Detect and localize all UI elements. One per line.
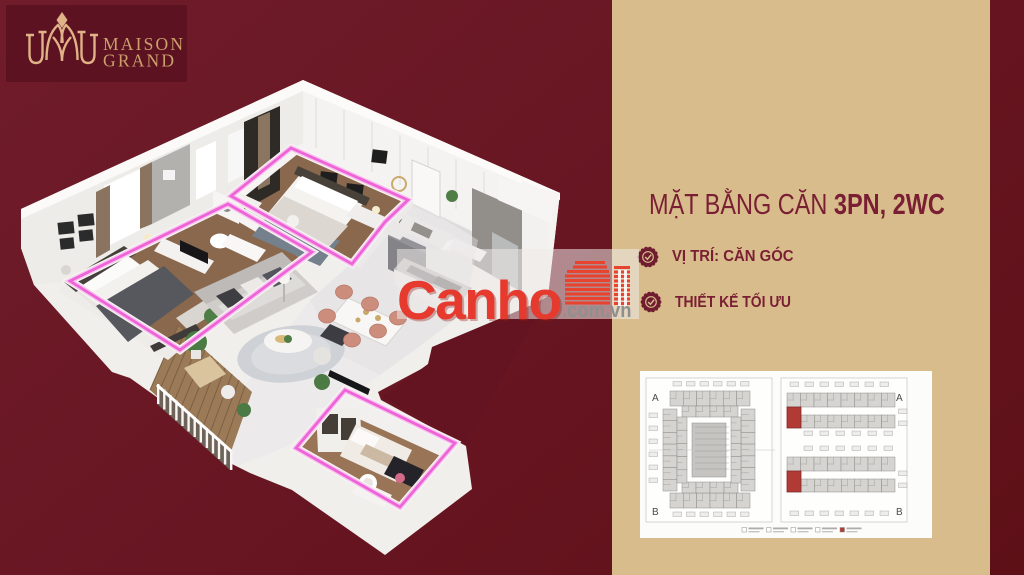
- svg-text:A: A: [652, 393, 659, 404]
- svg-text:GRAND: GRAND: [103, 51, 176, 71]
- svg-text:B: B: [652, 507, 659, 518]
- svg-text:A: A: [896, 393, 903, 404]
- svg-text:B: B: [896, 507, 903, 518]
